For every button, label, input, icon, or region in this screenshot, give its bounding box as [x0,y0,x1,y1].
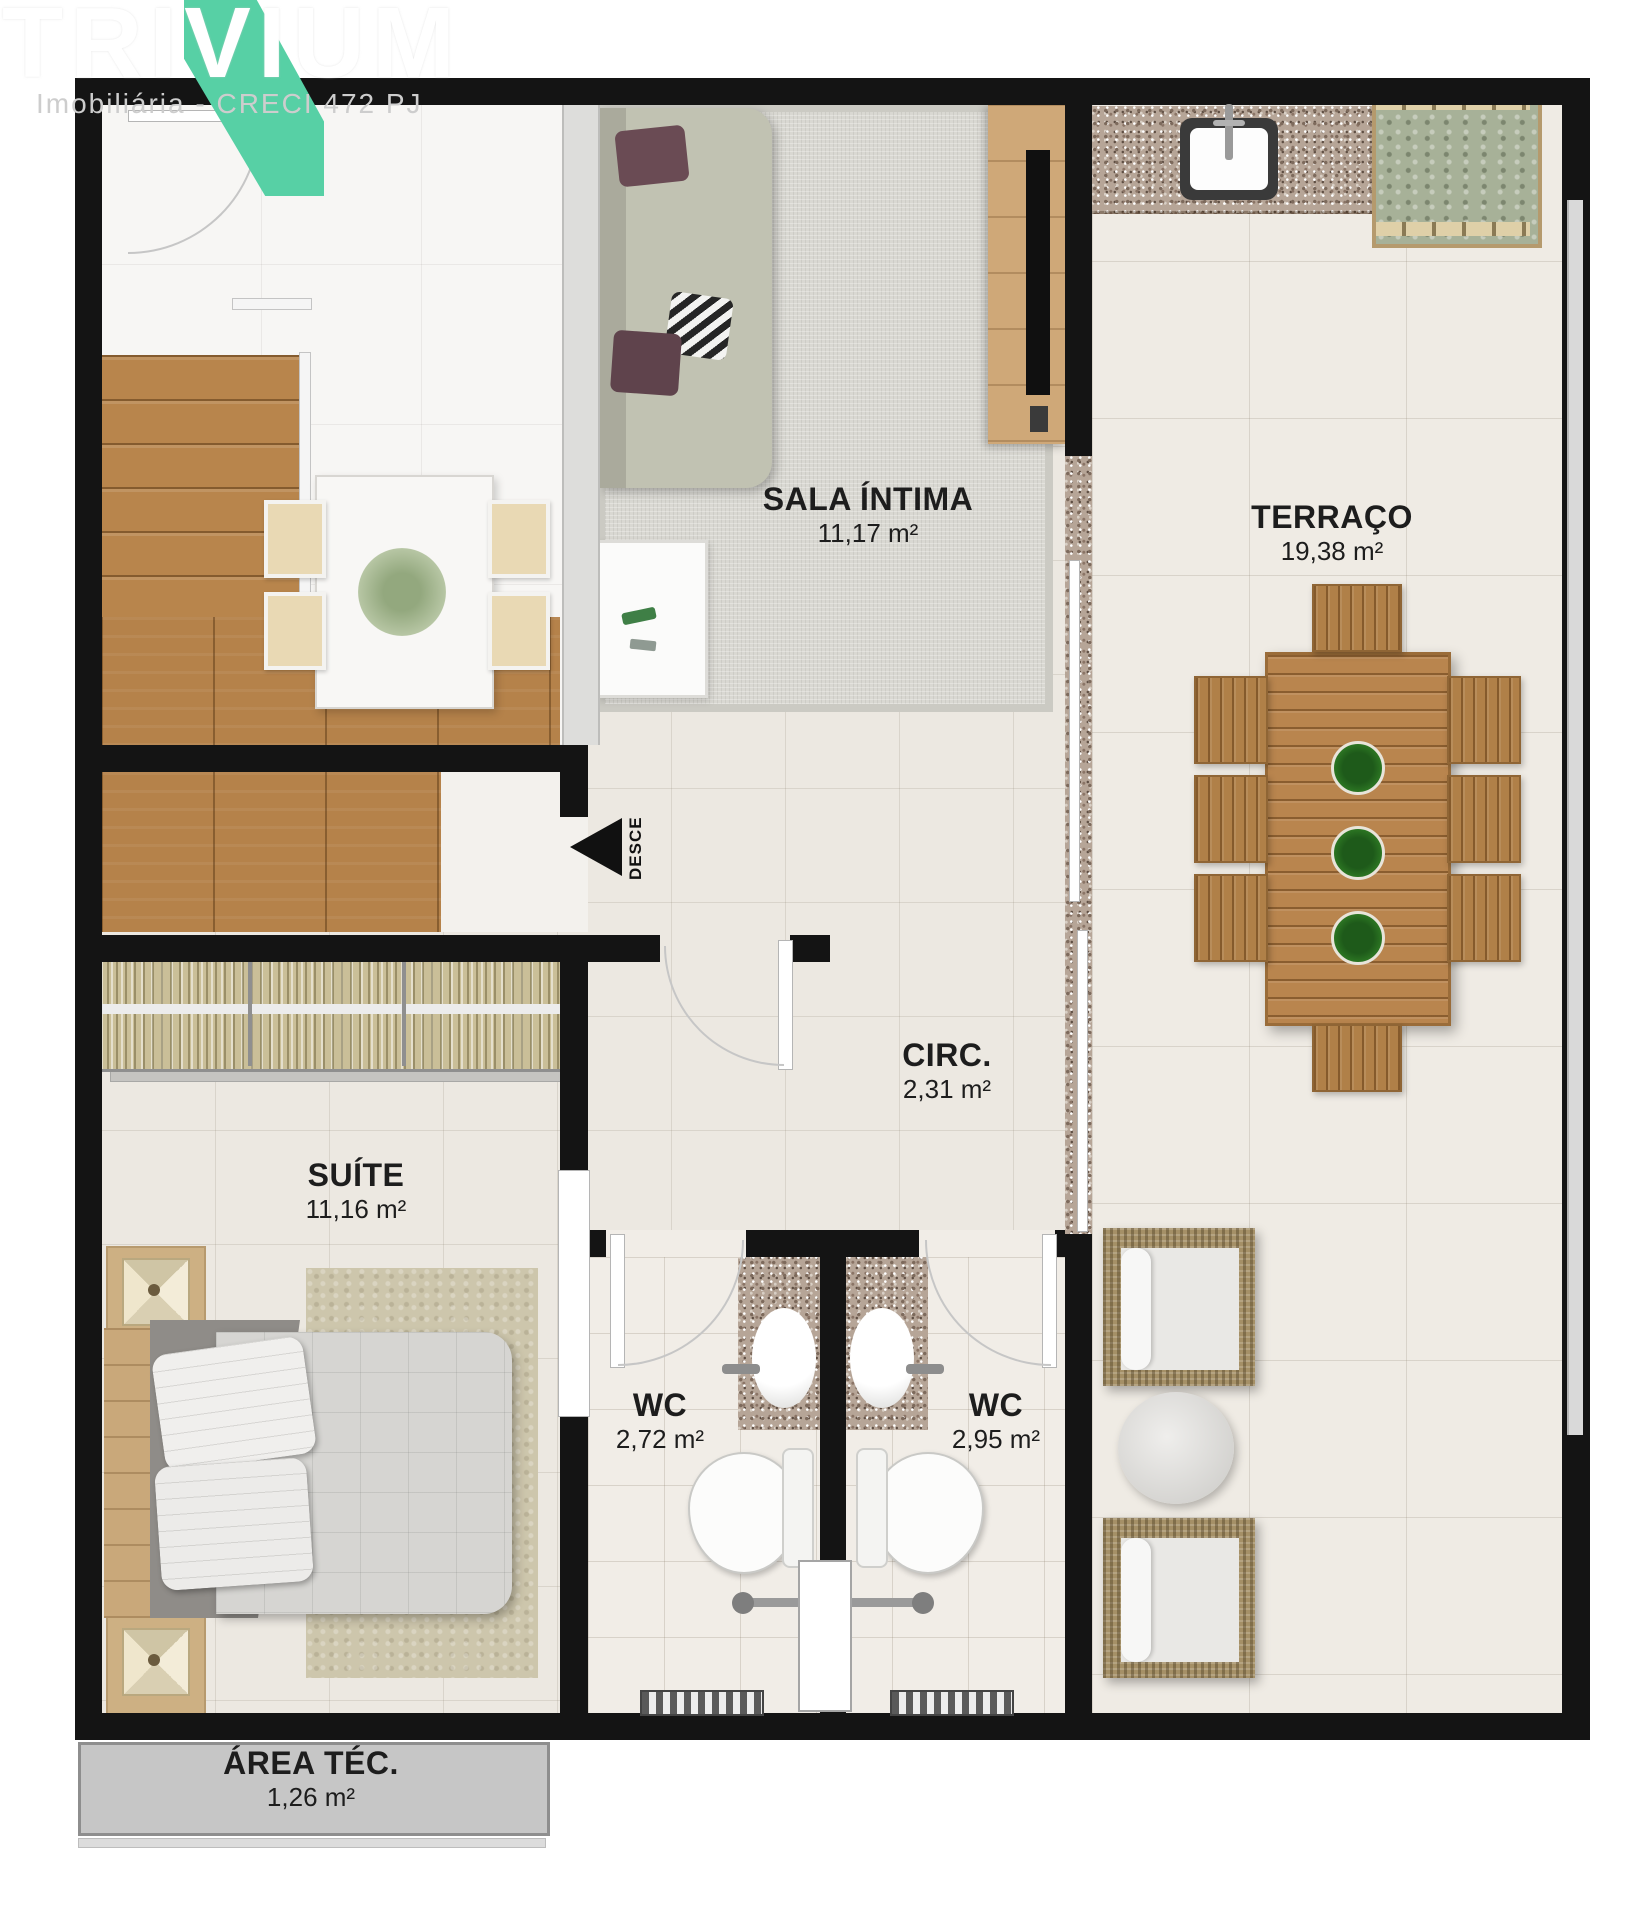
terrace-round-table [1118,1392,1234,1504]
nightstand-lamp-knob [148,1284,160,1296]
stair-railing-top [232,298,312,310]
dining-chair [488,592,550,670]
wall-under-stairs [75,745,560,772]
wall-bottom [75,1713,1590,1740]
wall-stair-side [560,745,588,817]
bed-pillow [154,1457,314,1591]
room-name: CIRC. [827,1038,1067,1073]
room-area: 11,17 m² [748,517,988,550]
wall-circ-jamb [790,935,830,962]
shower-head [732,1592,754,1614]
outdoor-chair [1194,676,1268,764]
terrace-glass-door [1077,930,1088,1232]
room-area: 19,38 m² [1212,535,1452,568]
room-name: ÁREA TÉC. [191,1746,431,1781]
suite-door [558,1170,590,1417]
outdoor-chair [1312,584,1402,652]
table-plant [1331,911,1385,965]
area-tec-base [78,1838,546,1848]
wall-sala-terrace [1065,104,1092,456]
outdoor-chair [1312,1024,1402,1092]
dining-chair [264,592,326,670]
outdoor-chair [1194,874,1268,962]
room-label-wc-left: WC 2,72 m² [560,1388,760,1455]
wall-terrace-wc [1065,1234,1092,1714]
logo-wordmark: TRIVIUM [2,0,462,101]
room-label-suite: SUÍTE 11,16 m² [236,1158,476,1225]
dining-plant [358,548,446,636]
floor-plan-canvas: DESCE SALA ÍNTIMA 11,17 m² TERRAÇO 19,38… [0,0,1644,1920]
room-name: WC [560,1388,760,1423]
outdoor-chair [1194,775,1268,863]
wc-sink [752,1308,816,1408]
room-name: TERRAÇO [1212,500,1452,535]
service-shaft [798,1560,852,1712]
shower-head [912,1592,934,1614]
room-area: 11,16 m² [236,1193,476,1226]
shower-drain [890,1690,1014,1716]
armchair-backrest [1121,1538,1151,1662]
kitchen-faucet [1225,104,1233,160]
glass-partition [562,104,600,745]
room-area: 2,31 m² [827,1073,1067,1106]
grill-slats-bottom [1376,222,1530,236]
room-label-wc-right: WC 2,95 m² [896,1388,1096,1455]
outdoor-chair [1447,874,1521,962]
table-plant [1331,826,1385,880]
armchair-backrest [1121,1248,1151,1370]
stair-railing [299,352,311,620]
nightstand-lamp-knob [148,1654,160,1666]
outdoor-chair [1447,676,1521,764]
wardrobe-divider [402,946,406,1066]
room-area: 1,26 m² [191,1781,431,1814]
toilet-tank [782,1448,814,1568]
sofa-pillow-plum [614,124,689,187]
table-plant [1331,741,1385,795]
room-label-circ: CIRC. 2,31 m² [827,1038,1067,1105]
dining-chair [488,500,550,578]
kitchen-faucet-handle [1213,120,1245,126]
room-area: 2,72 m² [560,1423,760,1456]
stairs-down-label: DESCE [626,816,646,880]
room-label-sala-intima: SALA ÍNTIMA 11,17 m² [748,482,988,549]
logo-subtitle: Imobiliária - CRECI 472 PJ [36,88,423,120]
room-area: 2,95 m² [896,1423,1096,1456]
bed-pillow [151,1335,318,1473]
glass-rail-right [1567,200,1583,1435]
room-name: SUÍTE [236,1158,476,1193]
outdoor-chair [1447,775,1521,863]
room-name: WC [896,1388,1096,1423]
room-label-terraco: TERRAÇO 19,38 m² [1212,500,1452,567]
bed-headboard [104,1328,150,1618]
terrace-glass-door [1069,560,1080,902]
tv-screen [1026,150,1050,395]
dining-chair [264,500,326,578]
tv-soundbar [1030,406,1048,432]
room-label-area-tec: ÁREA TÉC. 1,26 m² [191,1746,431,1813]
wardrobe-divider [248,946,252,1066]
sofa-pillow-plum [610,330,682,397]
wc-faucet [906,1364,944,1374]
stair-flight-lower [101,772,441,932]
shower-drain [640,1690,764,1716]
wc-faucet [722,1364,760,1374]
toilet-tank [856,1448,888,1568]
wardrobe [95,946,566,1072]
room-name: SALA ÍNTIMA [748,482,988,517]
brand-logo: TRIVIUM Imobiliária - CRECI 472 PJ [0,0,560,130]
wall-left [75,78,102,1740]
